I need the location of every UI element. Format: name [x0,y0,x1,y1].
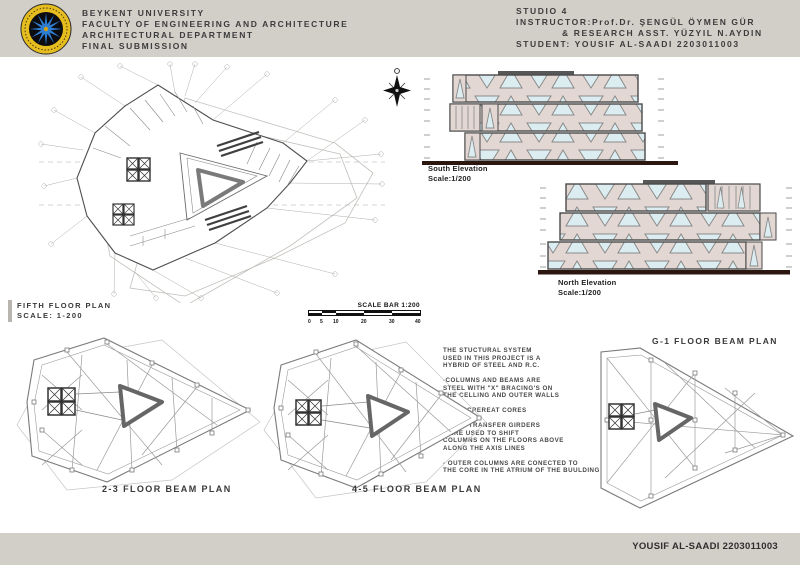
floor-plan-title: FIFTH FLOOR PLAN [17,301,111,311]
university-seal-logo [20,3,72,55]
header-studio-block: STUDIO 4 INSTRUCTOR:Prof.Dr. ŞENGÜL ÖYME… [516,6,763,50]
scale-bar-title: SCALE BAR 1:200 [308,302,420,309]
scale-tick-10: 10 [333,319,339,325]
core-block-lower [113,204,134,225]
fifth-floor-plan-drawing [35,58,390,303]
level-ticks-left [424,79,430,158]
south-elevation-drawing [420,65,682,165]
footer-band: YOUSIF AL-SAADI 2203011003 [0,533,800,565]
core-block [609,404,634,429]
north-elevation-drawing [538,176,800,276]
floor-plan-caption: FIFTH FLOOR PLAN SCALE: 1-200 [17,301,111,320]
scale-tick-20: 20 [361,319,367,325]
north-elevation-title: North Elevation [558,278,616,288]
ground-line [538,270,790,275]
beam-plan-2-3-drawing [12,330,262,492]
core-block-upper [127,158,150,181]
level-ticks-left [540,188,546,267]
floor-plan-caption-bar [8,300,12,322]
level-ticks-right [786,188,792,267]
scale-tick-40: 40 [415,319,421,325]
beam-plan-2-3-title: 2-3 FLOOR BEAM PLAN [102,484,232,494]
submission-type: FINAL SUBMISSION [82,41,348,52]
south-elevation-title: South Elevation [428,164,488,174]
architecture-submission-sheet: { "header": { "logo_name": "beykent-univ… [0,0,800,565]
north-elevation-caption: North Elevation Scale:1/200 [558,278,616,298]
header-band: BEYKENT UNIVERSITY FACULTY OF ENGINEERIN… [0,0,800,57]
scale-tick-0: 0 [308,319,311,325]
scale-tick-30: 30 [389,319,395,325]
beam-plan-4-5-drawing [256,330,488,505]
beam-plan-g1-drawing [585,338,800,516]
student-name: STUDENT: YOUSIF AL-SAADI 2203011003 [516,39,763,50]
instructor-name: INSTRUCTOR:Prof.Dr. ŞENGÜL ÖYMEN GÜR [516,17,763,28]
footer-credit: YOUSIF AL-SAADI 2203011003 [632,541,778,552]
north-arrow-compass [383,66,411,112]
university-name: BEYKENT UNIVERSITY [82,8,348,19]
south-elevation-scale: Scale:1/200 [428,174,488,184]
studio-name: STUDIO 4 [516,6,763,17]
plan-outline [77,85,307,270]
north-elevation-scale: Scale:1/200 [558,288,616,298]
scale-bar: 0 5 10 20 30 40 [308,310,422,328]
assistant-name: & RESEARCH ASST. YÜZYIL N.AYDIN [516,28,763,39]
department-name: ARCHITECTURAL DEPARTMENT [82,30,348,41]
floor-plan-scale: SCALE: 1-200 [17,311,111,321]
core-block [48,388,75,415]
header-institution-block: BEYKENT UNIVERSITY FACULTY OF ENGINEERIN… [82,8,348,52]
faculty-name: FACULTY OF ENGINEERING AND ARCHITECTURE [82,19,348,30]
level-ticks-right [658,79,664,158]
core-block [296,400,321,425]
beam-plan-4-5-title: 4-5 FLOOR BEAM PLAN [352,484,482,494]
scale-tick-5: 5 [320,319,323,325]
annex-panel [708,184,760,211]
south-elevation-caption: South Elevation Scale:1/200 [428,164,488,184]
